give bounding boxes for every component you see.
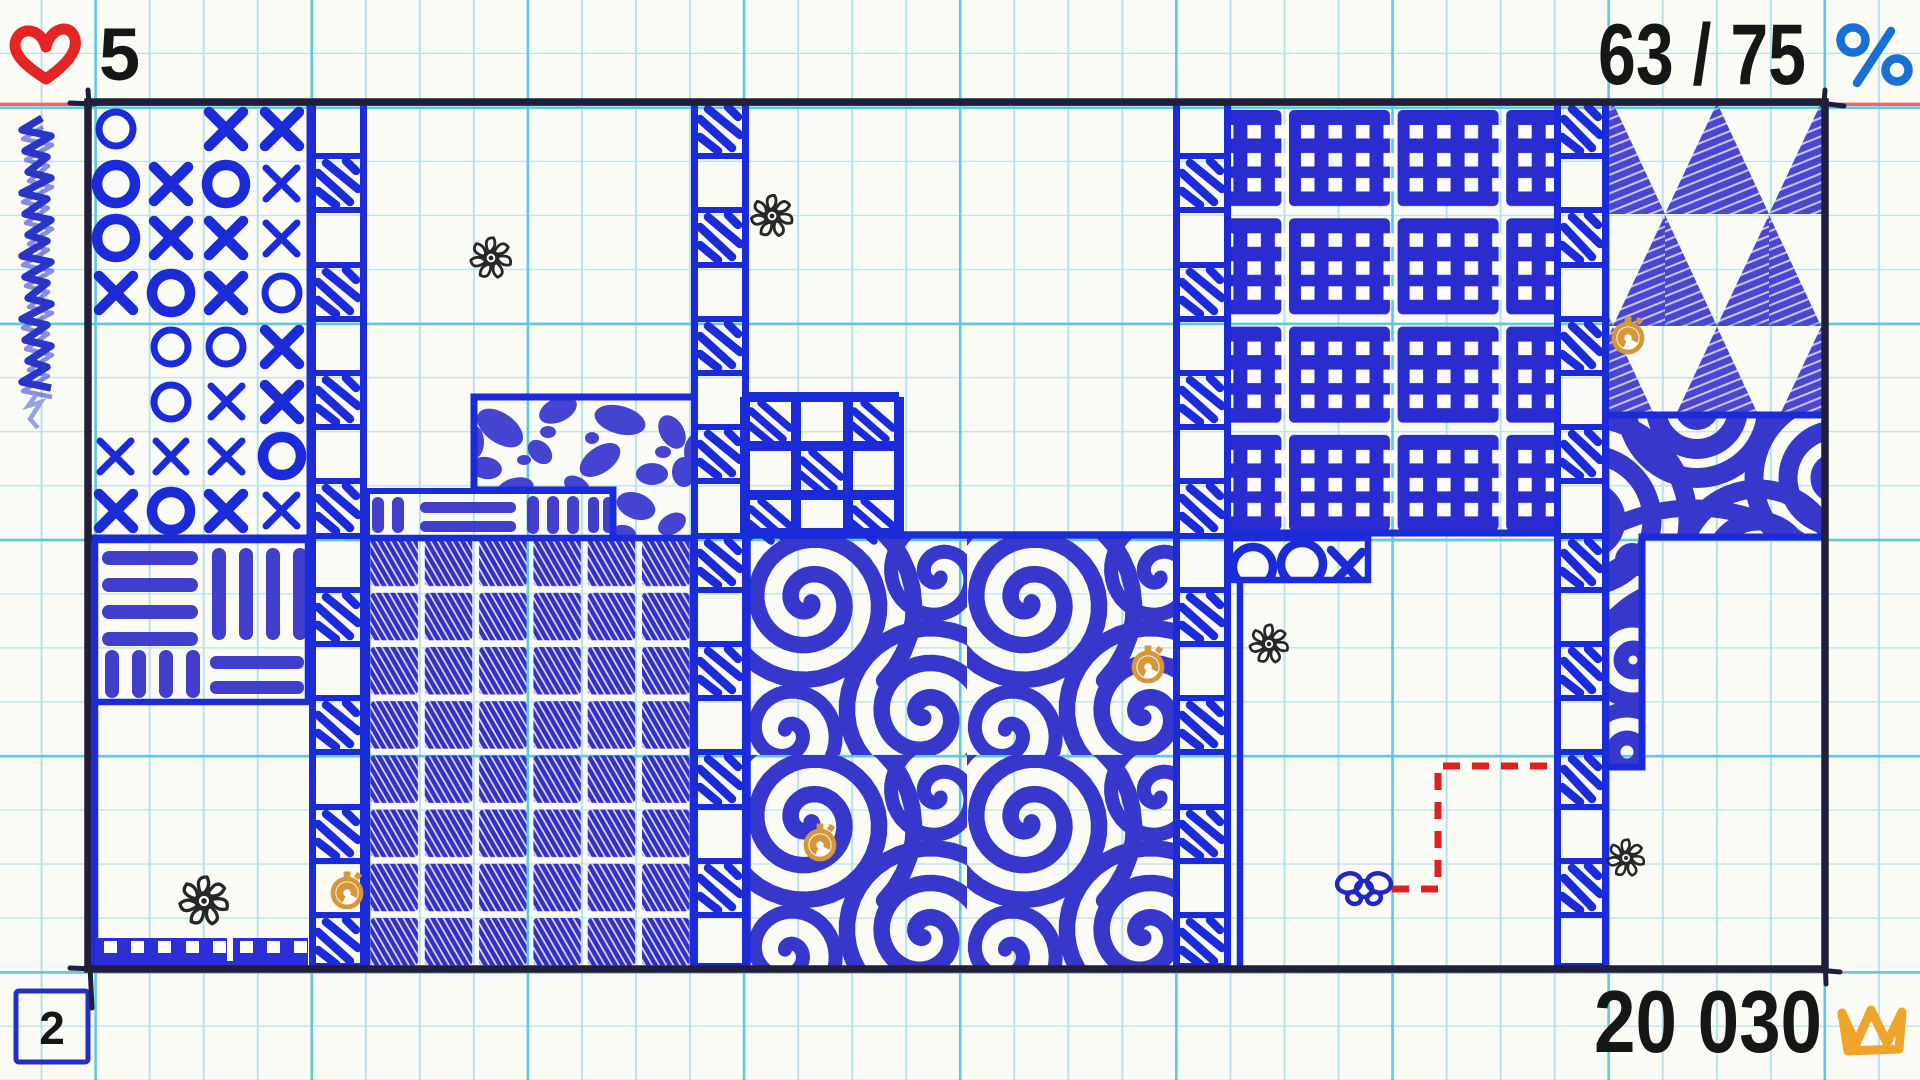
svg-text:2: 2 bbox=[39, 1002, 65, 1054]
svg-text:63 / 75: 63 / 75 bbox=[1598, 7, 1806, 103]
svg-text:5: 5 bbox=[99, 13, 140, 96]
svg-text:20 030: 20 030 bbox=[1594, 972, 1822, 1071]
